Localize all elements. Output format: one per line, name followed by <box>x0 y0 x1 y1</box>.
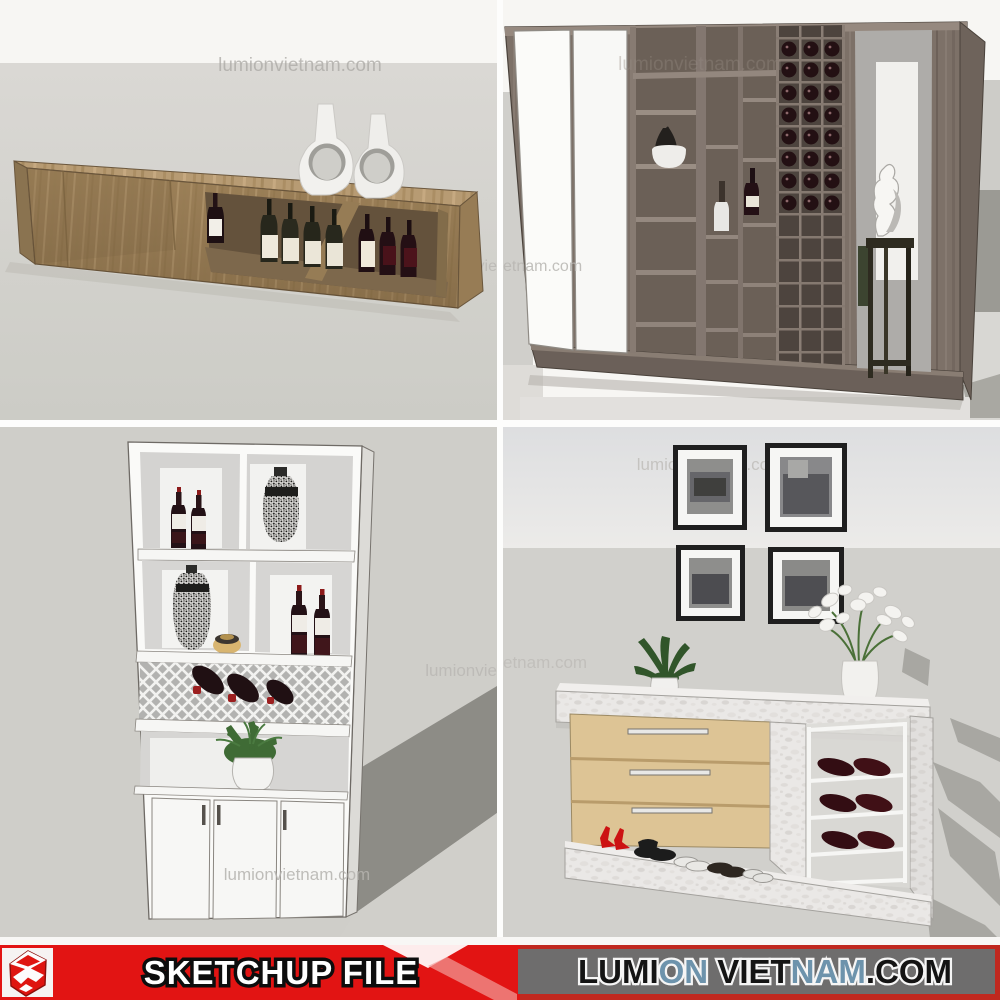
svg-text:lumionvietnam.com: lumionvietnam.com <box>218 55 382 76</box>
svg-text:etnam.com: etnam.com <box>503 258 582 275</box>
svg-text:etnam.com: etnam.com <box>503 653 587 672</box>
svg-text:LUMION VIETNAM.COM: LUMION VIETNAM.COM <box>578 953 952 990</box>
svg-text:lumionvietnam.com: lumionvietnam.com <box>224 865 370 884</box>
svg-text:lumionvie: lumionvie <box>425 661 497 680</box>
svg-text:lumionvietnam.com: lumionvietnam.com <box>618 54 782 75</box>
svg-text:SKETCHUP FILE: SKETCHUP FILE <box>144 954 419 991</box>
